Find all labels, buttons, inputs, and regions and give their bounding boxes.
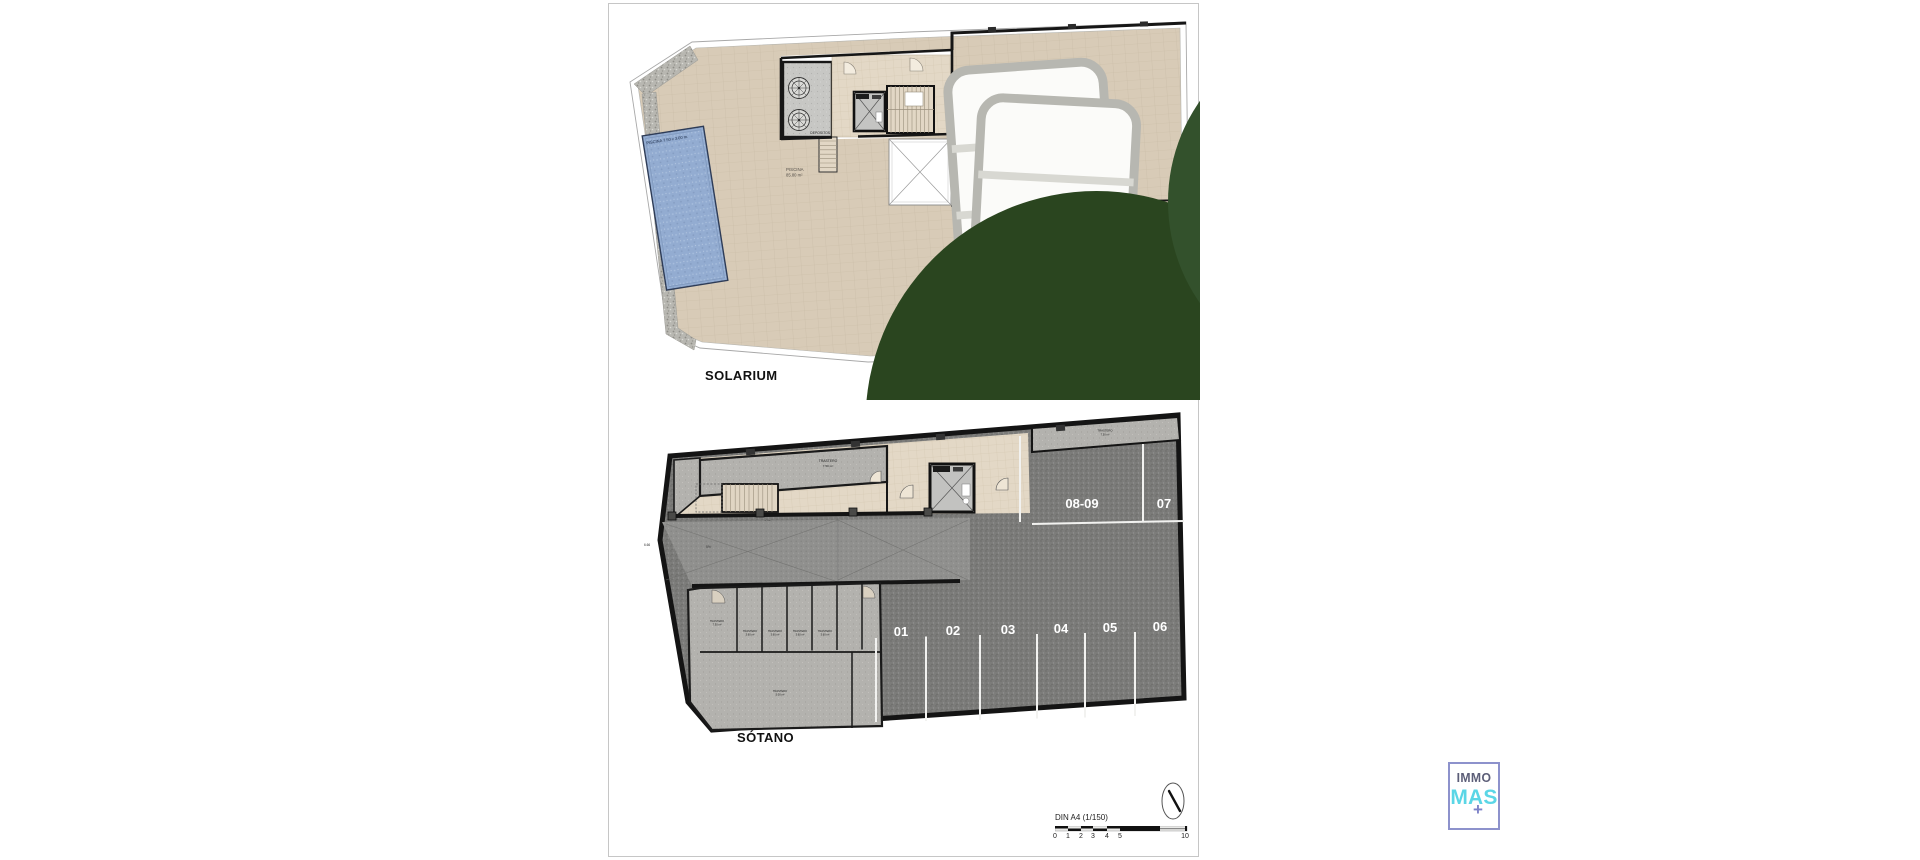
trastero-area: 7.30 m² — [713, 623, 722, 627]
sotano-plan-title: SÓTANO — [737, 730, 794, 745]
depositos-room: DEPOSITOS — [783, 62, 832, 137]
logo-plus-icon: + — [1473, 801, 1483, 818]
scale-tick: 1 — [1063, 833, 1073, 840]
depositos-label: DEPOSITOS — [810, 131, 830, 135]
parking-space-06: 06 — [1153, 619, 1167, 634]
trastero-area: 3.60 m² — [821, 633, 830, 637]
trastero-label: TRASTERO — [768, 629, 782, 633]
svg-text:85.80 m²: 85.80 m² — [786, 173, 803, 178]
svg-text:7.50 m²: 7.50 m² — [1101, 433, 1110, 437]
north-compass-icon — [1156, 779, 1190, 823]
scale-tick: 2 — [1076, 833, 1086, 840]
scale-tick: 3 — [1088, 833, 1098, 840]
patio-light-well — [889, 139, 951, 205]
basement-elevator — [930, 464, 974, 512]
ramp: 5% — [662, 518, 970, 586]
trastero-label: TRASTERO — [793, 629, 807, 633]
immomas-logo: IMMO MAS + — [1448, 762, 1500, 830]
parking-space-03: 03 — [1001, 622, 1015, 637]
scale-tick: 10 — [1180, 833, 1190, 840]
trastero-label: TRASTERO — [773, 689, 787, 693]
trastero-area: 3.60 m² — [771, 633, 780, 637]
scale-tick: 0 — [1050, 833, 1060, 840]
water-tank-icon — [789, 78, 810, 99]
sotano-floorplan: TRASTERO 7.50 m² — [600, 400, 1200, 760]
scale-label: DIN A4 (1/150) — [1055, 813, 1108, 822]
elevator — [854, 92, 885, 131]
document-canvas: PISCINA 7.50 x 3.00 m. PISCINA 85.80 m² — [0, 0, 1920, 860]
parking-space-02: 02 — [946, 623, 960, 638]
parking-space-07: 07 — [1157, 496, 1171, 511]
stairs — [887, 86, 934, 133]
ramp-length-dim: 6.66 — [644, 543, 650, 547]
parking-space-01: 01 — [894, 624, 908, 639]
solarium-plan-title: SOLARIUM — [705, 368, 778, 383]
ramp-slope-label: 5% — [706, 545, 711, 549]
trastero-cluster: TRASTERO 7.30 m² TRASTERO 3.60 m² TRASTE… — [688, 583, 882, 730]
svg-text:7.50 m²: 7.50 m² — [823, 464, 834, 468]
terrace-area-label: PISCINA 85.80 m² — [786, 167, 804, 178]
parking-space-04: 04 — [1054, 621, 1069, 636]
trastero-label: TRASTERO — [710, 619, 724, 623]
svg-text:TRASTERO: TRASTERO — [819, 459, 838, 463]
trastero-area: 3.60 m² — [796, 633, 805, 637]
svg-text:PISCINA: PISCINA — [786, 167, 804, 172]
trastero-area: 3.60 m² — [746, 633, 755, 637]
parking-space-05: 05 — [1103, 620, 1117, 635]
water-tank-icon — [789, 110, 810, 131]
scale-tick: 5 — [1115, 833, 1125, 840]
terrace-stair — [819, 137, 837, 172]
solarium-floorplan: PISCINA 7.50 x 3.00 m. PISCINA 85.80 m² — [600, 0, 1200, 400]
scale-tick: 4 — [1102, 833, 1112, 840]
parking-space-0809: 08-09 — [1065, 496, 1098, 511]
scale-bar — [1055, 826, 1191, 833]
trastero-label: TRASTERO — [818, 629, 832, 633]
trastero-label: TRASTERO — [743, 629, 757, 633]
logo-text-immo: IMMO — [1451, 771, 1496, 784]
trastero-area: 5.00 m² — [776, 693, 785, 697]
svg-text:TRASTERO: TRASTERO — [1097, 429, 1113, 433]
